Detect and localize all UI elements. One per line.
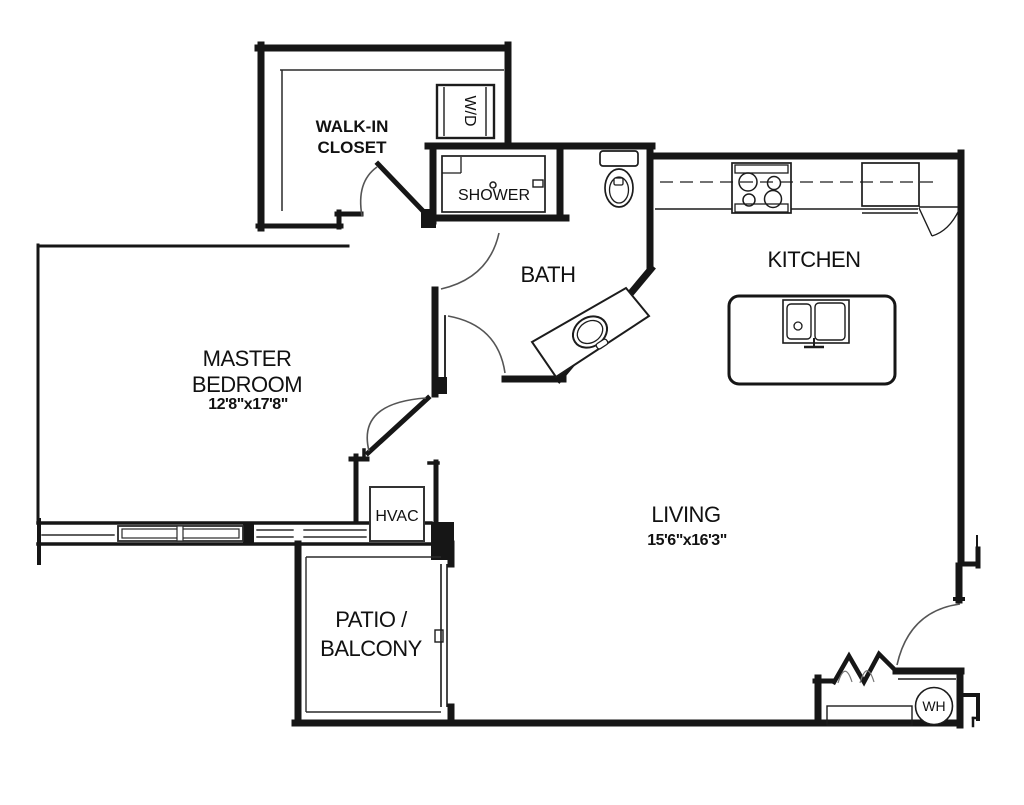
water-heater-label: WH <box>922 698 945 714</box>
patio-label-line2: BALCONY <box>320 636 422 661</box>
bath-door-arc <box>448 316 505 373</box>
living-label: LIVING <box>651 502 720 527</box>
kitchen-label: KITCHEN <box>767 247 860 272</box>
floor-plan-page: WALK-IN CLOSET W/D SHOWER BATH KITCHEN M… <box>0 0 1024 805</box>
closet-door-leaf <box>378 164 424 212</box>
kitchen-island <box>729 296 895 384</box>
bath-inner-door-arc <box>441 233 499 289</box>
labels: WALK-IN CLOSET W/D SHOWER BATH KITCHEN M… <box>192 95 946 714</box>
bedroom-window <box>118 526 243 541</box>
entry-door-arc <box>897 604 960 665</box>
master-bedroom-label-line2: BEDROOM <box>192 372 302 397</box>
walk-in-closet-label-line2: CLOSET <box>318 138 388 157</box>
shower-label: SHOWER <box>458 187 530 204</box>
bedroom-door-leaf <box>368 398 428 453</box>
kitchen-counter <box>655 182 933 209</box>
master-bedroom-dimensions: 12'8"x17'8" <box>208 396 288 413</box>
living-dimensions: 15'6"x16'3" <box>647 532 727 549</box>
island-sink-icon <box>783 300 849 347</box>
master-bedroom-label-line1: MASTER <box>203 346 292 371</box>
bifold-doors-icon <box>833 654 894 684</box>
floor-plan-canvas: WALK-IN CLOSET W/D SHOWER BATH KITCHEN M… <box>0 0 1024 805</box>
patio-details <box>306 557 441 712</box>
stove-icon <box>732 163 791 213</box>
walk-in-closet-label-line1: WALK-IN <box>316 117 389 136</box>
fridge-icon <box>862 163 919 213</box>
washer-dryer-label: W/D <box>461 95 478 126</box>
toilet-icon <box>600 151 638 207</box>
closet-door-arc <box>361 167 377 216</box>
bath-label: BATH <box>520 262 575 287</box>
patio-label-line1: PATIO / <box>335 607 408 632</box>
bath-vanity <box>532 288 649 377</box>
hvac-label: HVAC <box>375 508 418 525</box>
door-swing-arcs <box>361 167 960 665</box>
corner-cabinet-icon <box>919 207 959 236</box>
sliding-door-icon <box>435 564 447 707</box>
